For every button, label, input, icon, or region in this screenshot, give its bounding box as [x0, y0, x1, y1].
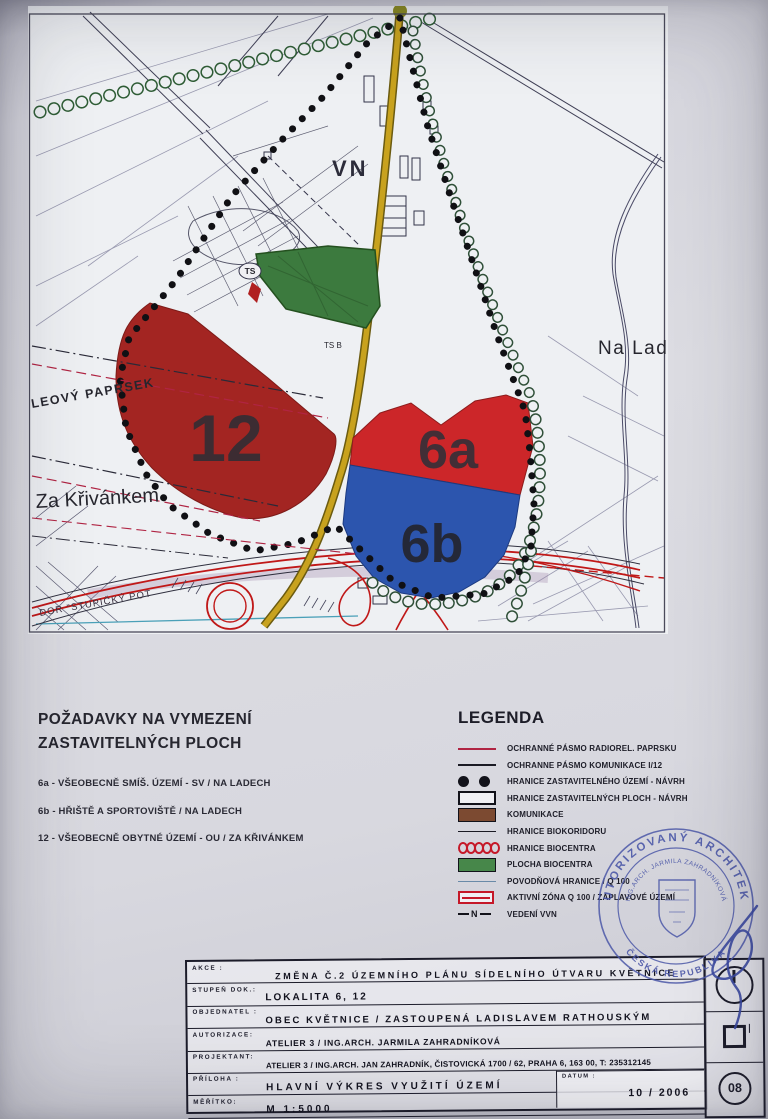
date-label: DATUM : — [562, 1073, 596, 1079]
legend-label: HRANICE ZASTAVITELNÉHO ÚZEMÍ - NÁVRH — [507, 777, 685, 786]
title-block-row-value: M 1:5000 — [266, 1104, 332, 1116]
legend-label: KOMUNIKACE — [507, 810, 564, 819]
requirement-item: 6a - VŠEOBECNĚ SMÍŠ. ÚZEMÍ - SV / NA LAD… — [38, 778, 428, 789]
date-cell: DATUM : 10 / 2006 — [556, 1069, 704, 1107]
sheet-number-badge: 08 — [718, 1072, 751, 1105]
map-label-ts-b: TS B — [324, 341, 342, 350]
orientation-cell — [705, 960, 762, 1012]
legend-symbol-red-line — [458, 748, 498, 750]
vvn-letter: N — [471, 909, 478, 919]
title-block-row-value: HLAVNÍ VÝKRES VYUŽITÍ ÚZEMÍ — [266, 1080, 502, 1093]
requirements-block: POŽADAVKY NA VYMEZENÍ ZASTAVITELNÝCH PLO… — [38, 708, 428, 861]
legend-label: VEDENÍ VVN — [507, 910, 557, 919]
title-block-row-label: OBJEDNATEL : — [192, 1009, 257, 1017]
legend-symbol-brown-rect — [458, 808, 498, 822]
format-cell — [706, 1011, 763, 1063]
title-block-row-label: AUTORIZACE: — [193, 1031, 254, 1039]
title-block-row-value: OBEC KVĚTNICE / ZASTOUPENÁ LADISLAVEM RA… — [265, 1012, 651, 1026]
legend-label: PLOCHA BIOCENTRA — [507, 860, 593, 869]
legend-row: OCHRANNÉ PÁSMO RADIOREL. PAPRSKU — [458, 742, 758, 755]
title-block-row-value: LOKALITA 6, 12 — [265, 992, 368, 1004]
title-block-row-label: PROJEKTANT: — [193, 1053, 254, 1061]
legend-label: OCHRANNÉ PÁSMO RADIOREL. PAPRSKU — [507, 744, 677, 753]
map-label-area-6b: 6b — [400, 514, 463, 574]
title-block-row-label: AKCE : — [192, 964, 223, 971]
legend-row: KOMUNIKACE — [458, 808, 758, 821]
requirement-item: 12 - VŠEOBECNĚ OBYTNÉ ÚZEMÍ - OU / ZA KŘ… — [38, 833, 428, 844]
legend-row: PLOCHA BIOCENTRA — [458, 858, 758, 871]
legend-row: AKTIVNÍ ZÓNA Q 100 / ZÁPLAVOVÉ ÚZEMÍ — [458, 891, 758, 904]
legend-row: HRANICE BIOCENTRA — [458, 842, 758, 855]
map-label-ts: TS — [245, 266, 256, 276]
title-block-row-label: PŘÍLOHA : — [193, 1076, 239, 1083]
legend-label: OCHRANNE PÁSMO KOMUNIKACE I/12 — [507, 761, 662, 770]
title-block-row-value: ZMĚNA Č.2 ÚZEMNÍHO PLÁNU SÍDELNÍHO ÚTVAR… — [275, 968, 676, 981]
requirements-title-line1: POŽADAVKY NA VYMEZENÍ — [38, 708, 428, 732]
legend: LEGENDA OCHRANNÉ PÁSMO RADIOREL. PAPRSKU… — [458, 708, 758, 925]
title-block-row-label: STUPEŇ DOK.: — [192, 986, 256, 994]
requirement-item: 6b - HŘIŠTĚ A SPORTOVIŠTĚ / NA LADECH — [38, 806, 428, 817]
sheet-format-icon — [723, 1025, 746, 1048]
title-block-row-label: MĚŘÍTKO: — [193, 1098, 237, 1105]
legend-row: HRANICE ZASTAVITELNÉHO ÚZEMÍ - NÁVRH — [458, 775, 758, 788]
legend-symbol-red-circles — [458, 842, 498, 854]
zoning-map: VN Na Lad Za Křivánkem LEOVÝ PAPRSEK DOR… — [28, 6, 668, 634]
legend-row: POVODŇOVÁ HRANICE / Q 100 — [458, 875, 758, 888]
legend-row: N VEDENÍ VVN — [458, 908, 758, 921]
requirements-title-line2: ZASTAVITELNÝCH PLOCH — [38, 732, 428, 756]
title-block-symbol-column: 08 — [703, 958, 765, 1119]
title-block-row-value: ATELIER 3 / ING.ARCH. JAN ZAHRADNÍK, ČIS… — [266, 1058, 651, 1070]
legend-label: HRANICE BIOCENTRA — [507, 844, 596, 853]
legend-symbol-green-rect — [458, 858, 498, 872]
legend-symbol-black-line — [458, 764, 498, 767]
map-label-area-6a: 6a — [418, 420, 479, 480]
legend-symbol-blue-line — [458, 881, 498, 883]
map-label-area-12: 12 — [189, 401, 262, 475]
sheet-number-cell: 08 — [706, 1063, 763, 1114]
legend-symbol-vvn: N — [458, 909, 498, 919]
title-block-row-value: ATELIER 3 / ING.ARCH. JARMILA ZAHRADNÍKO… — [266, 1036, 501, 1048]
legend-row: OCHRANNE PÁSMO KOMUNIKACE I/12 — [458, 759, 758, 772]
date-value: 10 / 2006 — [628, 1087, 690, 1100]
legend-label: AKTIVNÍ ZÓNA Q 100 / ZÁPLAVOVÉ ÚZEMÍ — [507, 893, 675, 902]
legend-symbol-thin-line — [458, 831, 498, 833]
legend-label: POVODŇOVÁ HRANICE / Q 100 — [507, 877, 630, 886]
legend-symbol-white-rect — [458, 791, 498, 805]
map-label-na-lad: Na Lad — [598, 338, 668, 359]
north-dial-icon — [715, 966, 753, 1004]
legend-label: HRANICE BIOKORIDORU — [507, 827, 606, 836]
legend-title: LEGENDA — [458, 708, 758, 728]
legend-symbol-black-dots — [458, 776, 498, 787]
legend-label: HRANICE ZASTAVITELNÝCH PLOCH - NÁVRH — [507, 794, 688, 803]
map-label-vn: VN — [332, 156, 369, 181]
legend-row: HRANICE ZASTAVITELNÝCH PLOCH - NÁVRH — [458, 792, 758, 805]
title-block: AKCE : ZMĚNA Č.2 ÚZEMNÍHO PLÁNU SÍDELNÍH… — [185, 955, 707, 1114]
legend-row: HRANICE BIOKORIDORU — [458, 825, 758, 838]
legend-symbol-red-outline-rect — [458, 891, 498, 904]
